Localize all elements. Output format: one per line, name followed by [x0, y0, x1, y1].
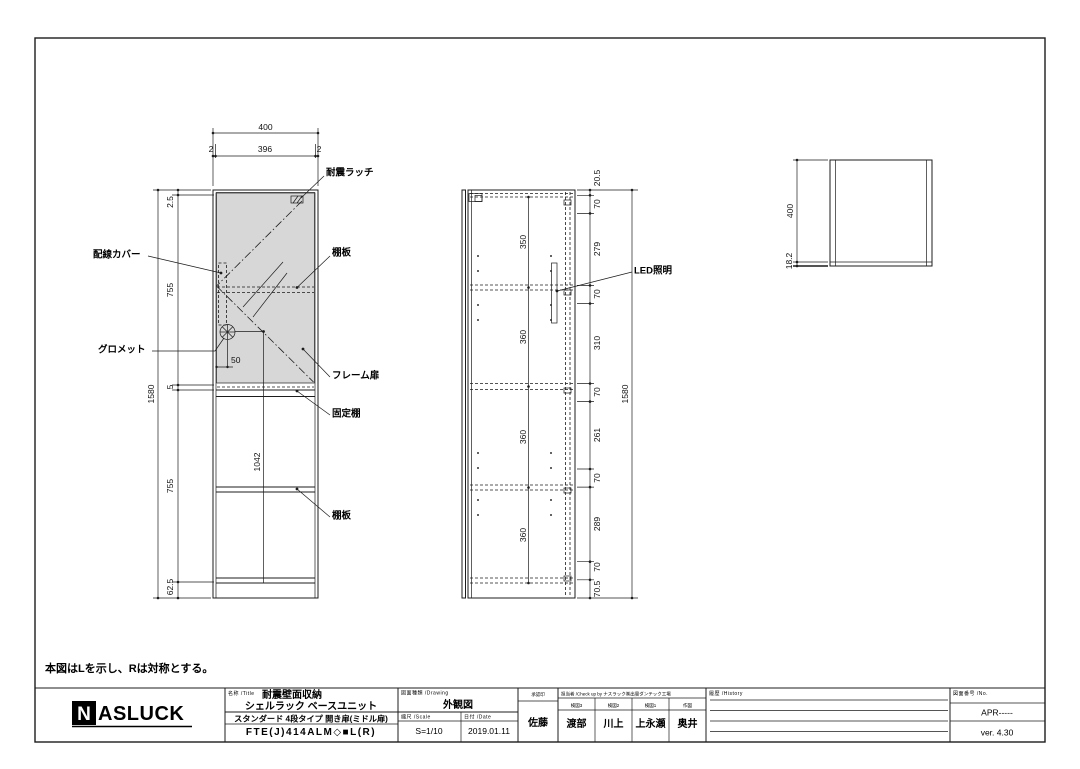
dim-lower-inner: 1042	[252, 452, 262, 471]
history-header: 履歴 /History	[709, 691, 743, 697]
dim-overall-height: 1580	[146, 384, 156, 403]
scale-value: S=1/10	[415, 726, 442, 736]
check-role-draft: 作図	[683, 702, 692, 709]
label-grommet: グロメット	[98, 344, 146, 356]
dim-s0: 20.5	[592, 169, 602, 186]
name-header: 名称 /Title	[228, 690, 255, 697]
dim-mid-gap: 5	[165, 384, 175, 389]
dim-s5: 70	[592, 387, 602, 397]
dim-base: 62.5	[165, 578, 175, 595]
dim-s2: 279	[592, 242, 602, 256]
drawing-type: 外観図	[442, 698, 473, 711]
dim-upper-755: 755	[165, 283, 175, 297]
dim-s6: 261	[592, 428, 602, 442]
label-shelf-lower: 棚板	[332, 510, 352, 522]
drawing-number: APR-----	[981, 708, 1013, 718]
dim-right-edge: 2	[317, 144, 322, 154]
number-header: 図面番号 /No.	[953, 690, 988, 697]
note-text: 本図はLを示し、Rは対称とする。	[45, 661, 213, 675]
scale-header: 縮尺 /Scale	[401, 714, 431, 721]
label-fixed-shelf: 固定棚	[332, 408, 361, 420]
check-name-1: 上永瀬	[636, 717, 666, 730]
dim-side-360a: 360	[518, 330, 528, 344]
model-code: FTE(J)414ALM◇■L(R)	[246, 727, 376, 738]
nasluck-logo: N ASLUCK	[72, 701, 192, 727]
check-role-1: 検図1	[645, 702, 657, 709]
check-header: 担当者 /Check up by ナスラック㈱出雲ダンテック工場	[561, 691, 671, 698]
date-header: 日付 /Date	[464, 714, 491, 721]
label-wiring-cover: 配線カバー	[93, 249, 141, 261]
dim-inner-width: 396	[258, 144, 272, 154]
dim-overall-width: 400	[258, 122, 272, 132]
approval-header: 承認印	[531, 691, 545, 698]
drawing-header: 図面種類 /Drawing	[401, 690, 449, 697]
label-shelf-upper: 棚板	[332, 247, 352, 259]
dim-s8: 289	[592, 517, 602, 531]
dim-top-front-thickness: 18.2	[784, 252, 794, 269]
check-name-draft: 奥井	[678, 717, 698, 730]
dim-top-gap: 2.5	[165, 196, 175, 208]
dim-s3: 70	[592, 289, 602, 299]
product-subtitle: シェルラック ベースユニット	[245, 701, 377, 713]
dim-side-360c: 360	[518, 528, 528, 542]
check-role-3: 検図3	[571, 702, 583, 709]
label-led: LED照明	[634, 266, 673, 277]
check-name-2: 川上	[603, 717, 624, 730]
dim-left-edge: 2	[209, 144, 214, 154]
dim-s4: 310	[592, 336, 602, 350]
dim-top-depth: 400	[785, 204, 795, 218]
dim-lower-755: 755	[165, 479, 175, 493]
dim-s1: 70	[592, 199, 602, 209]
dim-side-overall: 1580	[620, 384, 630, 403]
dim-side-350: 350	[518, 235, 528, 249]
logo-text: ASLUCK	[98, 703, 184, 725]
label-frame-door: フレーム扉	[332, 370, 380, 382]
approver-name: 佐藤	[527, 716, 549, 729]
date-value: 2019.01.11	[468, 726, 510, 736]
check-role-2: 検図2	[608, 702, 620, 709]
product-title: 耐震壁面収納	[262, 688, 322, 701]
check-name-3: 渡部	[567, 717, 587, 730]
grommet-icon	[220, 325, 235, 340]
dim-s7: 70	[592, 473, 602, 483]
logo-n: N	[77, 704, 91, 725]
dim-grommet-offset: 50	[231, 355, 241, 365]
dim-side-360b: 360	[518, 430, 528, 444]
drawing-sheet: 400 2 396 2 2.5 755 5 755 62.5 1580 50 1…	[0, 0, 1080, 764]
version-label: ver. 4.30	[981, 728, 1014, 738]
label-latch: 耐震ラッチ	[326, 167, 374, 179]
dim-s9: 70	[592, 562, 602, 572]
product-type: スタンダード 4段タイプ 開き扉(ミドル扉)	[234, 714, 388, 724]
dim-s10: 70.5	[592, 580, 602, 597]
